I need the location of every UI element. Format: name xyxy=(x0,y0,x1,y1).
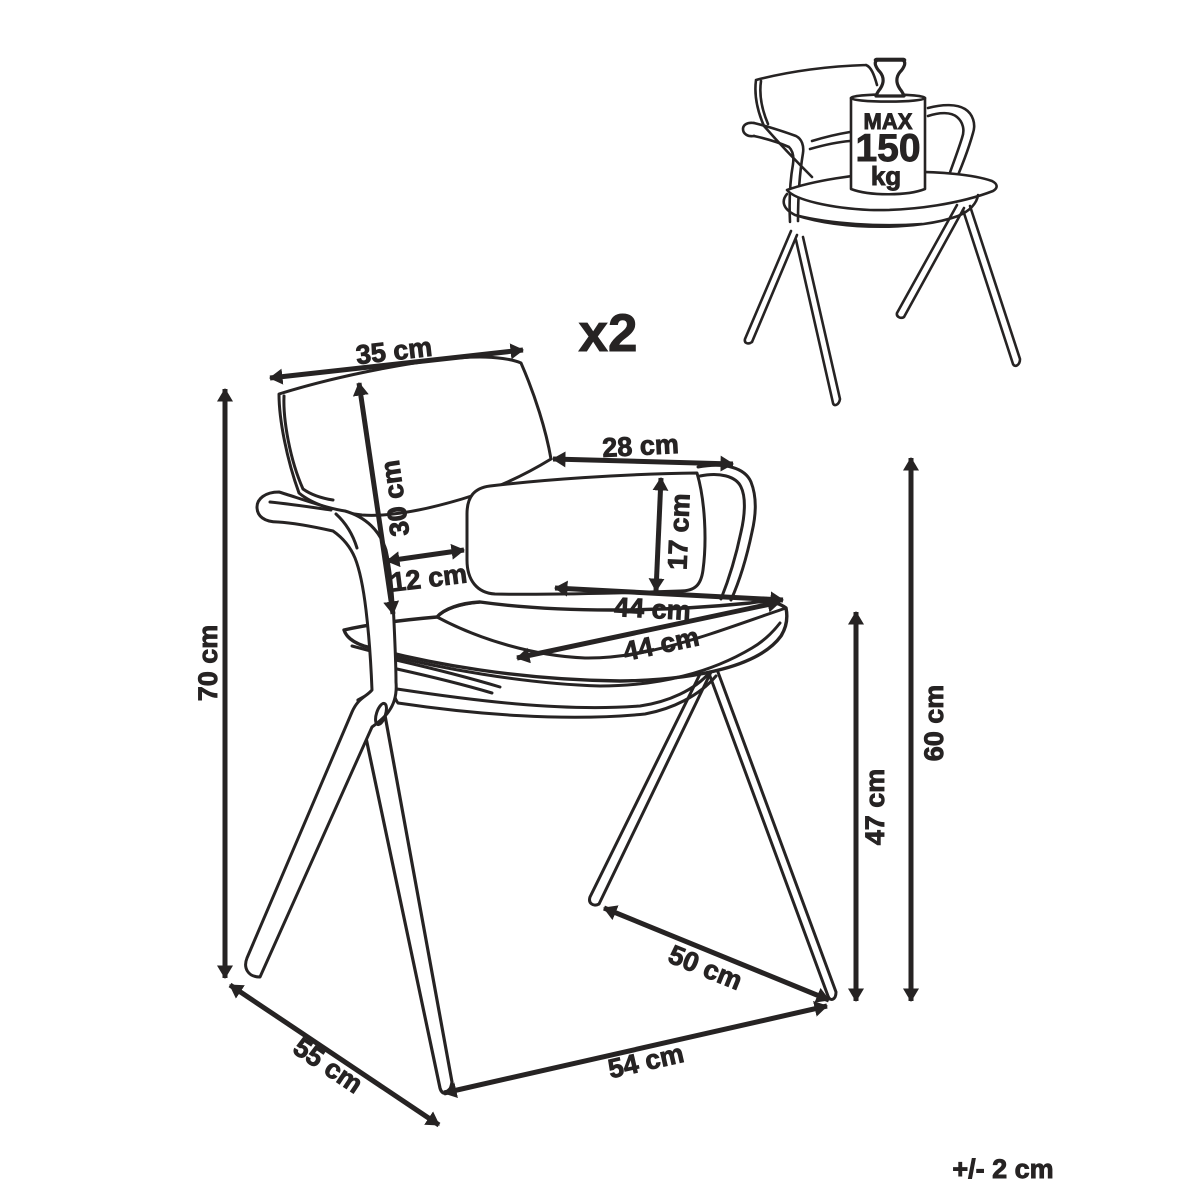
svg-text:70 cm: 70 cm xyxy=(193,625,223,702)
svg-text:x2: x2 xyxy=(579,304,638,363)
svg-text:17 cm: 17 cm xyxy=(662,493,695,571)
svg-text:kg: kg xyxy=(871,161,901,191)
svg-text:60 cm: 60 cm xyxy=(919,685,949,762)
svg-text:44 cm: 44 cm xyxy=(613,592,691,626)
svg-text:47 cm: 47 cm xyxy=(860,769,890,846)
svg-text:+/- 2 cm: +/- 2 cm xyxy=(952,1154,1053,1184)
svg-text:28 cm: 28 cm xyxy=(602,429,680,463)
